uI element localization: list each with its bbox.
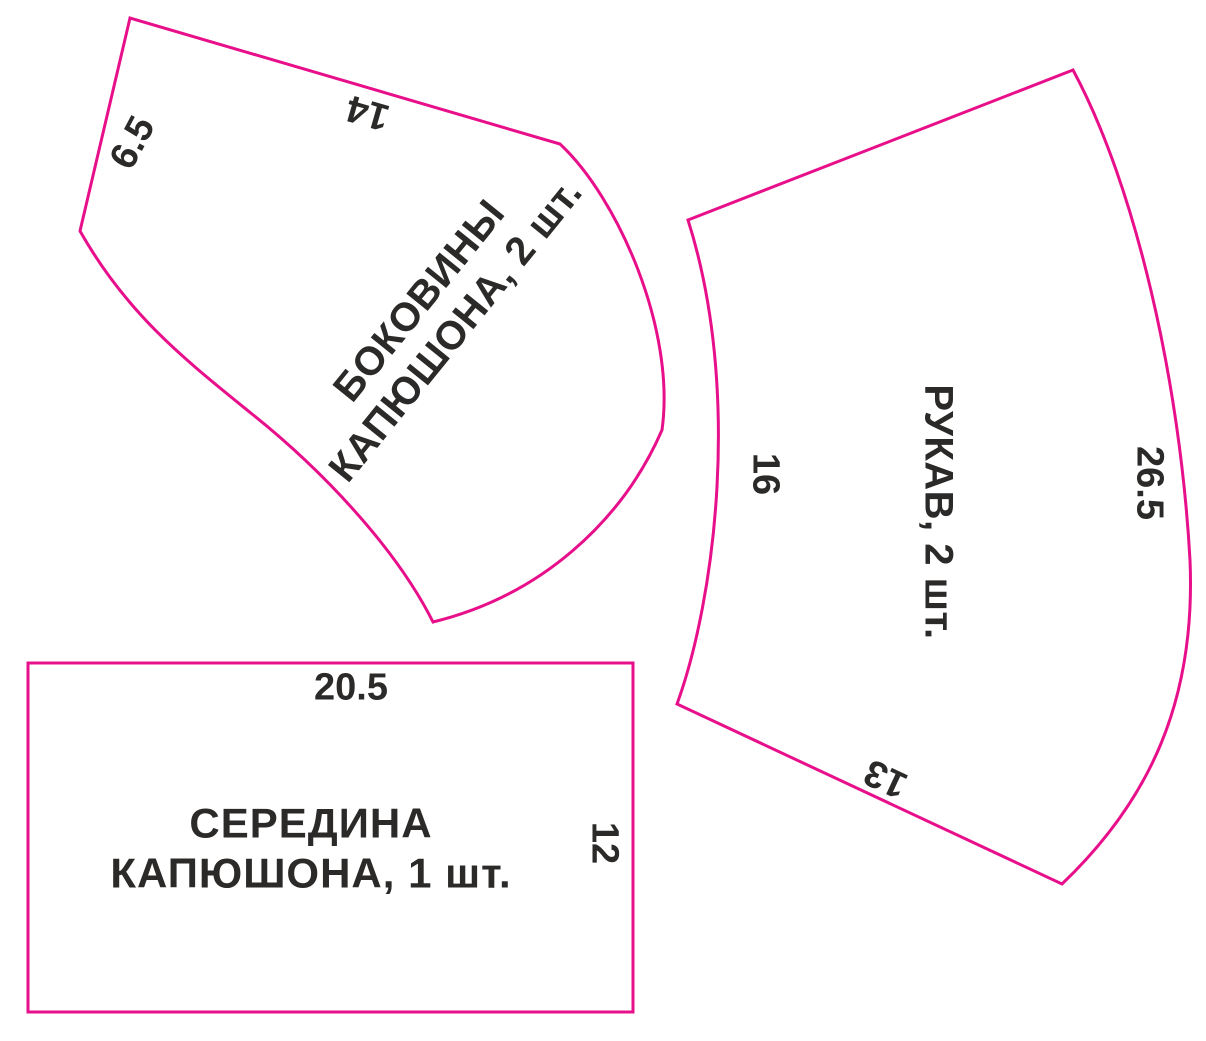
hood-center-piece-label: СЕРЕДИНА КАПЮШОНА, 1 шт. [110, 798, 511, 897]
pattern-sheet: БОКОВИНЫ КАПЮШОНА, 2 шт. 6.5 14 РУКАВ, 2… [0, 0, 1206, 1041]
sleeve-dimension-left-edge: 16 [743, 453, 788, 495]
hood-center-piece-label-line1: СЕРЕДИНА [110, 798, 511, 848]
sleeve-piece-label: РУКАВ, 2 шт. [914, 384, 961, 639]
hood-center-piece-label-line2: КАПЮШОНА, 1 шт. [110, 848, 511, 898]
sleeve-dimension-right-edge: 26.5 [1127, 446, 1172, 520]
hood-center-dimension-top-edge: 20.5 [314, 666, 388, 711]
hood-center-dimension-right-edge: 12 [582, 822, 627, 864]
